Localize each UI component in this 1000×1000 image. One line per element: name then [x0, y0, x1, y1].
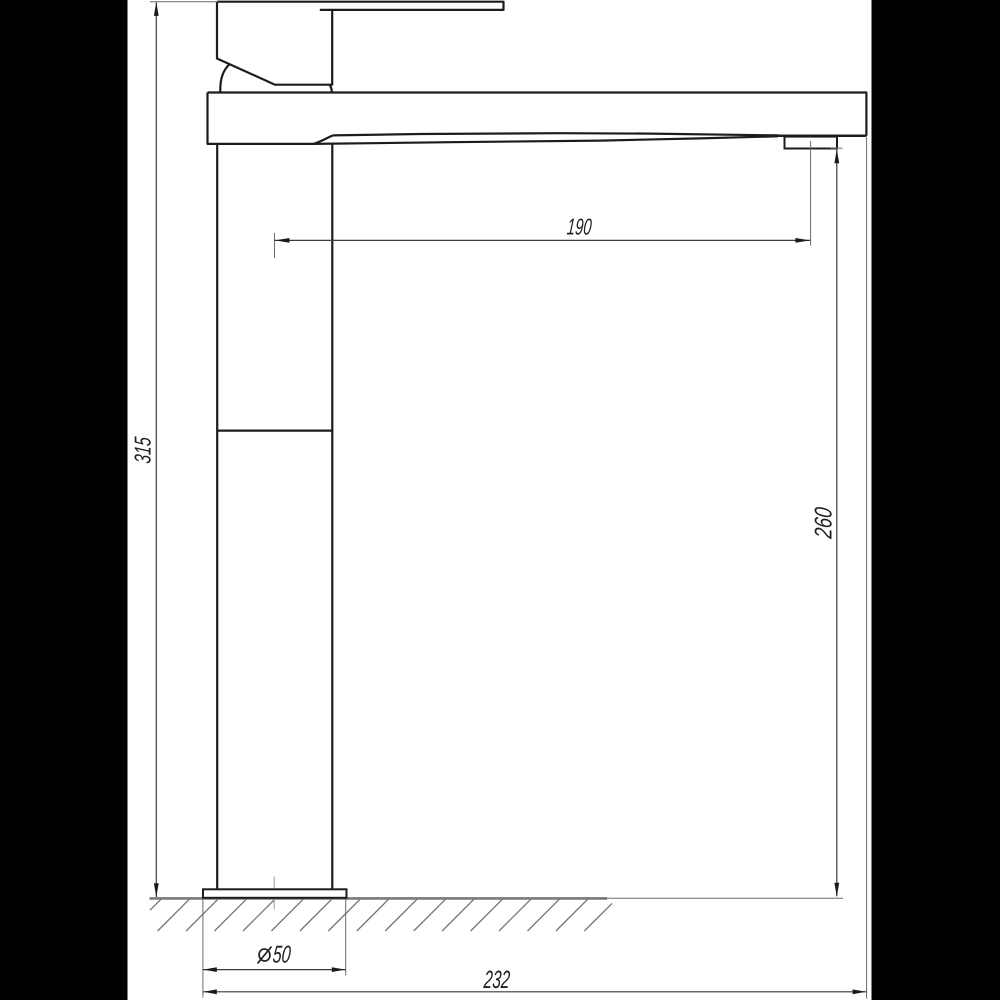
- svg-text:190: 190: [566, 214, 593, 240]
- svg-text:315: 315: [131, 435, 157, 464]
- svg-text:50: 50: [272, 942, 293, 969]
- svg-text:260: 260: [809, 506, 837, 541]
- svg-text:232: 232: [482, 967, 511, 995]
